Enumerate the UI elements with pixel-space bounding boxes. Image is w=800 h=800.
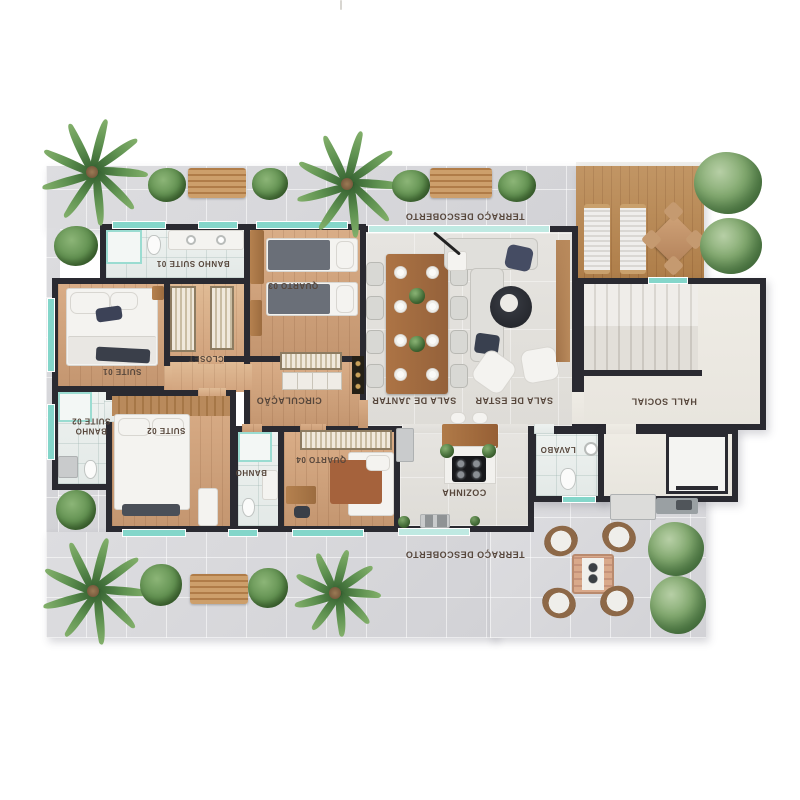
door-lavabo bbox=[534, 424, 554, 434]
label-hall-social: HALL SOCIAL bbox=[631, 396, 697, 407]
pillow bbox=[118, 418, 150, 436]
bath-vanity bbox=[58, 456, 78, 478]
table-centerpiece-plant bbox=[409, 336, 425, 352]
elevator-car bbox=[666, 434, 728, 494]
bush bbox=[140, 564, 182, 606]
label-cozinha: COZINHA bbox=[442, 487, 487, 498]
label-closet: CLOSET bbox=[188, 353, 223, 363]
terrace-bush-large bbox=[648, 522, 704, 576]
bush bbox=[252, 168, 288, 200]
door-suite-02 bbox=[198, 388, 226, 396]
window-banho bbox=[228, 529, 258, 537]
sun-lounger bbox=[584, 204, 610, 274]
counter-plant bbox=[482, 444, 496, 458]
wine-rack bbox=[352, 356, 364, 394]
wardrobe bbox=[210, 286, 234, 350]
bush bbox=[498, 170, 536, 202]
sideboard-doors bbox=[282, 372, 342, 390]
grill-sink bbox=[676, 500, 692, 510]
label-suite-01: SUITE 01 bbox=[103, 366, 142, 376]
plate bbox=[426, 300, 439, 313]
sink bbox=[216, 235, 226, 245]
desk-quarto-03 bbox=[250, 300, 262, 336]
window-banho-suite-01-a bbox=[112, 221, 166, 229]
dining-chair bbox=[450, 330, 468, 354]
door-suite-01 bbox=[164, 366, 172, 390]
windowsill-plant bbox=[470, 516, 480, 526]
glass-door-deck-stairs bbox=[648, 277, 688, 284]
stairs-divider-wall bbox=[584, 370, 702, 376]
window-quarto-04 bbox=[292, 529, 364, 537]
palm-tree bbox=[282, 540, 388, 646]
bed-blanket-dark bbox=[268, 240, 330, 270]
garden-bench bbox=[188, 168, 246, 198]
door-hall-elevator bbox=[606, 424, 636, 434]
label-suite-02: SUITE 02 bbox=[147, 425, 186, 435]
label-lavabo: LAVABO bbox=[540, 444, 576, 454]
stairs-lower-flight bbox=[584, 326, 698, 370]
armchair-navy bbox=[504, 244, 534, 273]
elevator-door-line bbox=[676, 486, 718, 490]
window-suite-01-left bbox=[47, 298, 55, 372]
wardrobe bbox=[170, 286, 196, 352]
label-banho-suite-02: BANHO SUITE 02 bbox=[72, 416, 111, 435]
label-banho-suite-01: BANHO SUITE 01 bbox=[156, 258, 229, 268]
label-circulacao: CIRCULAÇÃO bbox=[256, 395, 322, 406]
dresser-suite-02 bbox=[198, 488, 218, 526]
door-sala-hall bbox=[572, 392, 584, 424]
opening-sala-circulacao bbox=[358, 400, 368, 428]
coffee-table-tray bbox=[500, 294, 518, 312]
bush bbox=[148, 168, 186, 202]
bush bbox=[392, 170, 430, 202]
window-banho-suite-02-left bbox=[47, 404, 55, 460]
refrigerator bbox=[396, 428, 414, 462]
desk-quarto-04 bbox=[286, 486, 316, 504]
nightstand bbox=[340, 0, 342, 10]
window-banho-suite-01-b bbox=[198, 221, 238, 229]
garden-bench bbox=[430, 168, 492, 198]
bed-foot-bench bbox=[122, 504, 180, 516]
bed-throw bbox=[96, 347, 151, 364]
dining-chair bbox=[366, 330, 384, 354]
palm-tree bbox=[295, 132, 399, 236]
label-banho-suite-02-line1: BANHO bbox=[72, 426, 111, 436]
deck-tree bbox=[700, 218, 762, 274]
room-lavabo bbox=[530, 428, 604, 502]
kitchen-sink bbox=[420, 514, 450, 528]
toilet bbox=[84, 460, 97, 479]
wardrobe-quarto-03 bbox=[250, 230, 264, 284]
bath-vanity bbox=[168, 230, 244, 250]
table-centerpiece-plant bbox=[409, 288, 425, 304]
cooktop bbox=[452, 456, 486, 482]
bush bbox=[54, 226, 98, 266]
toilet bbox=[560, 468, 576, 490]
lounge-pouf bbox=[519, 345, 560, 385]
dining-chair bbox=[366, 364, 384, 388]
plate bbox=[394, 368, 407, 381]
floor-plan-canvas: TERRAÇO DESCOBERTO BANHO SUITE 01 QUARTO… bbox=[0, 0, 800, 800]
nightstand bbox=[152, 286, 164, 300]
dining-chair bbox=[366, 262, 384, 286]
windowsill-plant bbox=[398, 516, 410, 528]
plate bbox=[426, 266, 439, 279]
label-banho: BANHO bbox=[235, 467, 267, 477]
glass-door-cozinha-terrace bbox=[398, 528, 470, 536]
plate bbox=[426, 334, 439, 347]
label-quarto-03: QUARTO 03 bbox=[268, 280, 318, 290]
plate bbox=[394, 300, 407, 313]
pillow bbox=[366, 455, 390, 471]
plate bbox=[426, 368, 439, 381]
outdoor-mat bbox=[610, 494, 656, 520]
bar-stool bbox=[450, 412, 466, 424]
dining-chair bbox=[450, 296, 468, 320]
shower bbox=[238, 432, 272, 462]
sink bbox=[186, 235, 196, 245]
label-sala-de-jantar: SALA DE JANTAR bbox=[372, 395, 457, 406]
label-terraco-top: TERRAÇO DESCOBERTO bbox=[405, 211, 524, 222]
counter-plant bbox=[440, 444, 454, 458]
terrace-bush-large bbox=[650, 576, 706, 634]
pillow bbox=[336, 285, 354, 313]
round-sink bbox=[584, 442, 598, 456]
palm-tree bbox=[38, 536, 148, 646]
opening-circ-corridor bbox=[244, 364, 252, 390]
plate bbox=[394, 266, 407, 279]
dining-chair bbox=[450, 364, 468, 388]
bush bbox=[56, 490, 96, 530]
palm-tree bbox=[42, 122, 142, 222]
wardrobe-quarto-04 bbox=[300, 430, 392, 450]
toilet bbox=[242, 498, 255, 517]
plate bbox=[394, 334, 407, 347]
sideboard-striped bbox=[280, 352, 342, 370]
garden-bench bbox=[190, 574, 248, 604]
pillow bbox=[336, 241, 354, 269]
window-lavabo bbox=[562, 496, 596, 503]
label-banho-suite-02-line2: SUITE 02 bbox=[72, 416, 111, 426]
stairs-upper-flight bbox=[584, 284, 698, 326]
label-sala-de-estar: SALA DE ESTAR bbox=[475, 395, 553, 406]
tv-panel bbox=[556, 240, 570, 362]
toilet bbox=[147, 235, 161, 255]
desk-chair bbox=[294, 506, 310, 518]
dining-chair bbox=[366, 296, 384, 320]
outdoor-table-runner bbox=[582, 558, 604, 590]
label-quarto-04: QUARTO 04 bbox=[296, 454, 346, 464]
bar-stool bbox=[472, 412, 488, 424]
headboard-suite-02 bbox=[112, 396, 230, 416]
shower bbox=[106, 230, 142, 264]
label-terraco-bottom: TERRAÇO DESCOBERTO bbox=[405, 549, 524, 560]
deck-tree bbox=[694, 152, 762, 214]
